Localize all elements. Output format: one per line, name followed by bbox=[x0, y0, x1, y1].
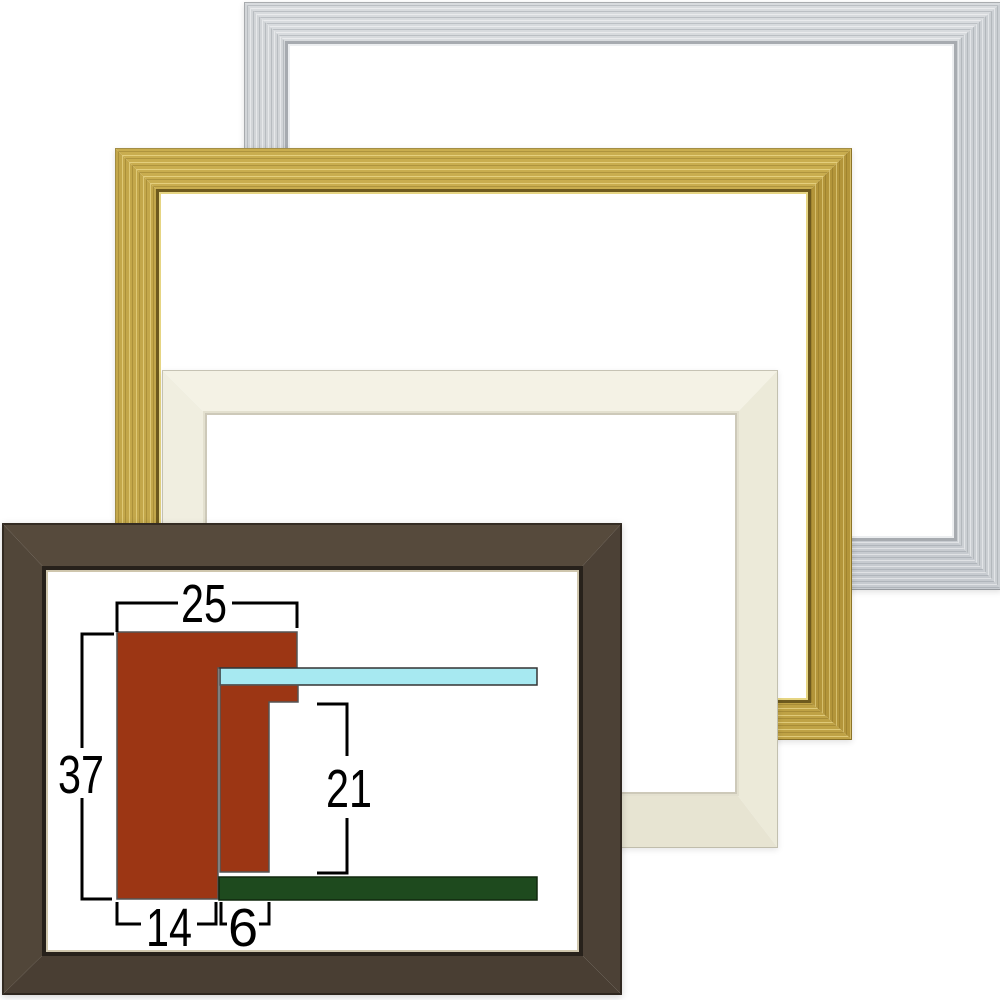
dim-line-left-height-top bbox=[82, 634, 114, 748]
glass-bar bbox=[220, 668, 537, 685]
backboard-bar bbox=[219, 877, 537, 900]
dim-line-left-height-bottom bbox=[82, 798, 112, 899]
dark-brown-frame: 25 37 21 14 6 bbox=[2, 523, 622, 995]
dim-label-face-width: 14 bbox=[146, 898, 192, 950]
dim-label-spacer-width: 6 bbox=[228, 898, 258, 950]
dim-line-spacer-right bbox=[259, 902, 269, 924]
dim-label-left-height: 37 bbox=[58, 745, 104, 805]
dim-label-top-width: 25 bbox=[181, 574, 227, 634]
dim-line-top-width bbox=[117, 603, 178, 632]
spacer-shape bbox=[220, 685, 298, 872]
dim-line-top-width-right bbox=[232, 603, 297, 628]
dim-line-face-width-right bbox=[197, 902, 216, 924]
dim-line-spacer-left bbox=[221, 902, 227, 924]
dim-line-inner-height-bottom bbox=[317, 818, 347, 873]
dim-line-face-width-left bbox=[117, 902, 141, 924]
product-image: 25 37 21 14 6 bbox=[0, 0, 1000, 1000]
cross-section-diagram: 25 37 21 14 6 bbox=[48, 572, 577, 950]
dim-label-inner-height: 21 bbox=[326, 759, 372, 819]
dim-line-inner-height-top bbox=[317, 704, 347, 756]
